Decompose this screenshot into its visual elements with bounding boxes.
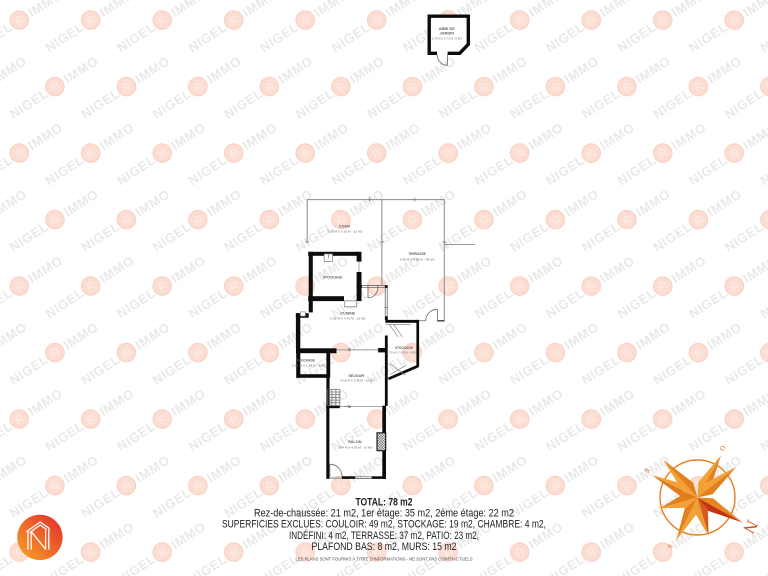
svg-text:CUISINE: CUISINE [341,311,356,315]
svg-text:TERRASSE: TERRASSE [408,252,426,256]
svg-text:STOCKAGE: STOCKAGE [297,358,316,362]
svg-text:5.35 M X 4.75 M - 16 M2: 5.35 M X 4.75 M - 16 M2 [330,317,366,321]
svg-text:O: O [717,444,726,452]
svg-text:STOCKAGE: STOCKAGE [323,276,343,280]
svg-text:4.60 M X 8.58 M - 38 M2: 4.60 M X 8.58 M - 38 M2 [400,257,435,261]
svg-text:2.78 M X 2.73 M - 8 M2: 2.78 M X 2.73 M - 8 M2 [432,37,462,41]
svg-text:SALON: SALON [348,440,362,444]
svg-text:2.56 M X 1.84 M - 4 M2: 2.56 M X 1.84 M - 4 M2 [292,364,326,368]
svg-text:PLAFOND BAS: 8 m2, MURS: 15 m2: PLAFOND BAS: 8 m2, MURS: 15 m2 [312,541,457,553]
svg-text:3.84 M X 4.95 M - 19 M2: 3.84 M X 4.95 M - 19 M2 [338,446,373,450]
svg-text:JARDIN: JARDIN [440,31,455,36]
svg-text:SEJOUR: SEJOUR [348,374,364,378]
svg-text:SUPERFICIES EXCLUES: COULOIR:: SUPERFICIES EXCLUES: COULOIR: 49 m2, STO… [222,519,546,531]
svg-text:COUR: COUR [339,225,350,229]
svg-text:STOCKAGE: STOCKAGE [395,346,414,350]
svg-text:INDÉFINI: 4 m2, TERRASSE: 37 m: INDÉFINI: 4 m2, TERRASSE: 37 m2, PATIO: … [289,529,479,542]
svg-text:LES PLANS SONT FOURNIS À TITRE: LES PLANS SONT FOURNIS À TITRE D'INFORMA… [296,556,473,562]
svg-text:Rez-de-chaussée: 21 m2, 1er ét: Rez-de-chaussée: 21 m2, 1er étage: 35 m2… [254,507,514,519]
svg-text:N: N [739,517,762,537]
svg-text:5.28 M X 6.10 M - 32 M2: 5.28 M X 6.10 M - 32 M2 [328,230,363,234]
svg-text:2.75 M X 3.05 M - 8 M2: 2.75 M X 3.05 M - 8 M2 [387,351,417,355]
svg-text:4.06 M X 3.98 M - 15 M2: 4.06 M X 3.98 M - 15 M2 [341,379,375,383]
